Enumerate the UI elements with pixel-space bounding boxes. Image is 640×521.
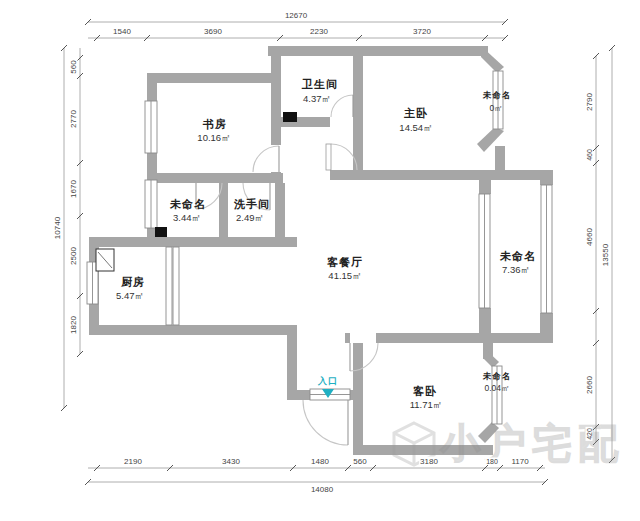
room-area-washroom: 2.49㎡ — [236, 212, 264, 225]
room-area-guest: 11.71㎡ — [410, 399, 443, 412]
room-area-study: 10.16㎡ — [197, 132, 230, 145]
room-area-kitchen: 5.47㎡ — [116, 290, 144, 303]
column — [155, 227, 167, 237]
dimension-label: 1670 — [69, 179, 78, 199]
wall — [268, 46, 488, 56]
dimension-label: 180 — [485, 458, 499, 465]
wall — [353, 445, 493, 455]
dimension-label: 10740 — [53, 216, 62, 240]
room-name-balcony: 未命名 — [500, 249, 536, 264]
dimension-label: 560 — [69, 59, 78, 74]
dimension-label: 1170 — [510, 457, 529, 466]
dimension-label: 1820 — [69, 315, 78, 335]
room-name-bay-top: 未命名 — [483, 90, 512, 102]
wall — [353, 343, 363, 445]
room-area-unnamed: 3.44㎡ — [173, 212, 201, 225]
room-name-bathroom: 卫生间 — [302, 77, 338, 92]
door-arc-entry — [303, 400, 348, 445]
dimension-label: 13550 — [601, 243, 610, 267]
dimension-label: 1480 — [310, 457, 330, 466]
door-arc-bathroom — [331, 95, 353, 117]
fridge-icon — [96, 249, 114, 271]
column — [283, 112, 297, 122]
room-name-bay-bottom: 未命名 — [483, 371, 512, 383]
room-name-washroom: 洗手间 — [234, 197, 270, 212]
dimension-label: 1540 — [112, 27, 132, 36]
dimension-label: 560 — [352, 457, 367, 466]
wall — [287, 390, 310, 400]
sliding-door-kitchen — [173, 247, 179, 325]
wall — [376, 333, 553, 343]
wall — [353, 56, 363, 170]
wall — [275, 183, 285, 237]
dimension-label: 12670 — [284, 11, 308, 20]
wall — [540, 313, 553, 343]
dimension-label: 2190 — [123, 457, 143, 466]
room-area-bay-bottom: 0.04㎡ — [484, 383, 509, 395]
floor-plan-canvas: 卫生间 4.37㎡ 主卧 14.54㎡ 未命名 0㎡ 书房 10.16㎡ 未命名… — [0, 0, 640, 521]
door-arc-study — [253, 146, 279, 172]
room-area-bay-top: 0㎡ — [489, 103, 502, 115]
room-name-living: 客餐厅 — [327, 255, 363, 270]
dimension-label: 4660 — [585, 227, 594, 247]
wall — [89, 325, 297, 335]
room-area-balcony: 7.36㎡ — [502, 264, 530, 277]
dimension-label: 3180 — [419, 457, 439, 466]
dimension-label: 3720 — [412, 27, 432, 36]
dimension-label: 2500 — [69, 246, 78, 266]
dimension-label: 2660 — [585, 375, 594, 395]
dimension-label: 14080 — [310, 485, 334, 494]
wall — [147, 173, 283, 183]
room-name-kitchen: 厨房 — [121, 275, 145, 290]
wall — [89, 237, 297, 247]
wall — [271, 56, 281, 145]
wall — [147, 73, 281, 83]
wall — [479, 308, 491, 333]
room-area-living: 41.15㎡ — [328, 270, 361, 283]
bay-corner — [478, 422, 499, 443]
room-area-bathroom: 4.37㎡ — [303, 93, 331, 106]
room-area-master: 14.54㎡ — [399, 122, 432, 135]
wall — [345, 333, 350, 343]
dimension-label: 420 — [586, 427, 593, 441]
sliding-door-kitchen — [166, 247, 172, 325]
dimension-label: 3430 — [221, 457, 241, 466]
room-name-study: 书房 — [203, 117, 227, 132]
dimension-label: 2790 — [585, 92, 594, 112]
room-name-guest: 客卧 — [413, 384, 437, 399]
wall — [330, 170, 553, 180]
wall — [540, 170, 553, 185]
dimension-label: 2230 — [309, 27, 329, 36]
room-name-master: 主卧 — [404, 106, 428, 121]
dimension-label: 460 — [586, 148, 593, 162]
bay-corner — [481, 46, 504, 73]
room-name-unnamed: 未命名 — [170, 197, 206, 212]
wall — [479, 180, 491, 194]
dimension-label: 2770 — [69, 109, 78, 129]
dimension-label: 3690 — [203, 27, 223, 36]
wall — [495, 146, 505, 174]
entrance-label: 入口 — [318, 375, 338, 388]
